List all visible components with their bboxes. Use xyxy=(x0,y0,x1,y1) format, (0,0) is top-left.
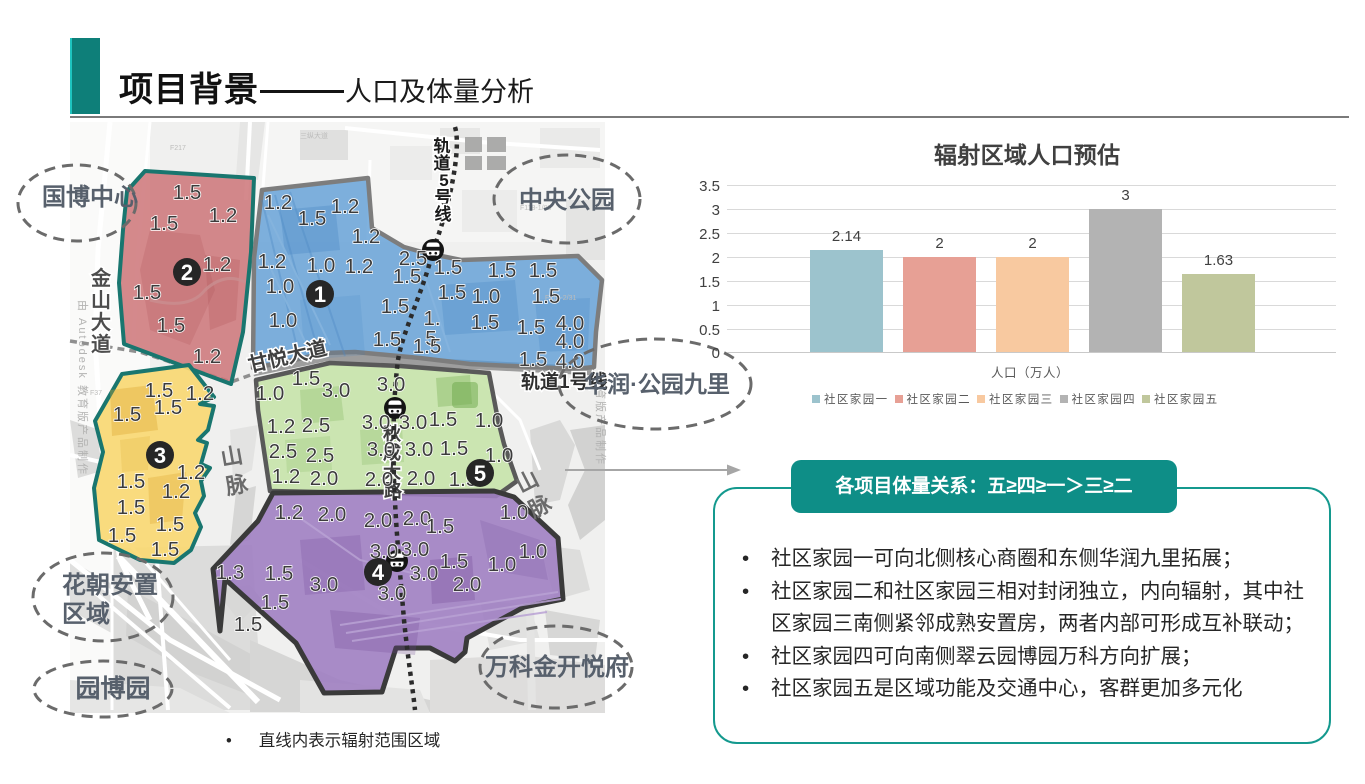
svg-text:1.2: 1.2 xyxy=(162,480,191,503)
svg-text:1: 1 xyxy=(314,282,326,307)
svg-text:国博中心: 国博中心 xyxy=(42,184,138,211)
svg-text:1.2: 1.2 xyxy=(209,204,238,227)
svg-text:5: 5 xyxy=(474,461,486,486)
svg-text:园博园: 园博园 xyxy=(75,675,150,703)
svg-text:1.5: 1.5 xyxy=(426,515,455,538)
svg-text:1.5: 1.5 xyxy=(373,328,402,351)
svg-text:1.5: 1.5 xyxy=(532,285,561,308)
svg-text:1.0: 1.0 xyxy=(307,254,336,277)
svg-text:3.0: 3.0 xyxy=(322,379,351,402)
svg-text:2.0: 2.0 xyxy=(364,509,393,532)
svg-text:中央公园: 中央公园 xyxy=(519,187,615,214)
svg-text:3.0: 3.0 xyxy=(399,411,428,434)
svg-text:3.0: 3.0 xyxy=(377,373,406,396)
svg-text:1.2: 1.2 xyxy=(345,255,374,278)
svg-text:3.0: 3.0 xyxy=(405,438,434,461)
svg-text:2.5: 2.5 xyxy=(306,444,335,467)
svg-text:1.5: 1.5 xyxy=(529,259,558,282)
svg-text:1.2: 1.2 xyxy=(267,415,296,438)
svg-text:1.2: 1.2 xyxy=(258,250,287,273)
svg-text:花朝安置: 花朝安置 xyxy=(62,571,158,599)
svg-text:3.0: 3.0 xyxy=(362,411,391,434)
svg-text:2.0: 2.0 xyxy=(407,467,436,490)
svg-text:1.5: 1.5 xyxy=(108,524,137,547)
svg-text:1.0: 1.0 xyxy=(488,553,517,576)
svg-text:1.5: 1.5 xyxy=(413,335,442,358)
svg-text:1.5: 1.5 xyxy=(154,396,183,419)
svg-text:1.0: 1.0 xyxy=(519,540,548,563)
svg-text:1.5: 1.5 xyxy=(517,316,546,339)
svg-text:1.5: 1.5 xyxy=(519,348,548,371)
svg-text:万科金开悦府: 万科金开悦府 xyxy=(485,653,629,681)
svg-text:1.5: 1.5 xyxy=(488,259,517,282)
svg-text:1.2: 1.2 xyxy=(275,501,304,524)
svg-text:1.0: 1.0 xyxy=(256,382,285,405)
svg-text:3.0: 3.0 xyxy=(367,438,396,461)
svg-text:1.5: 1.5 xyxy=(261,591,290,614)
svg-text:1.5: 1.5 xyxy=(438,281,467,304)
svg-text:三纵大道: 三纵大道 xyxy=(300,131,328,140)
svg-text:1.5: 1.5 xyxy=(429,408,458,431)
svg-text:1.5: 1.5 xyxy=(298,207,327,230)
svg-text:3.0: 3.0 xyxy=(378,582,407,605)
svg-text:1.5: 1.5 xyxy=(150,212,179,235)
svg-text:3: 3 xyxy=(154,443,166,468)
svg-text:1.5: 1.5 xyxy=(117,470,146,493)
svg-text:1.5: 1.5 xyxy=(292,367,321,390)
svg-text:1.5: 1.5 xyxy=(156,513,185,536)
svg-text:F217: F217 xyxy=(170,145,186,152)
svg-text:1.2: 1.2 xyxy=(352,225,381,248)
svg-text:1.5: 1.5 xyxy=(157,314,186,337)
svg-text:1.5: 1.5 xyxy=(133,281,162,304)
svg-text:2.5: 2.5 xyxy=(302,414,331,437)
svg-text:1.2: 1.2 xyxy=(203,253,232,276)
svg-text:1.2: 1.2 xyxy=(331,195,360,218)
svg-text:1.5: 1.5 xyxy=(434,256,463,279)
svg-text:4: 4 xyxy=(372,560,385,585)
svg-text:1.5: 1.5 xyxy=(151,538,180,561)
svg-text:1.5: 1.5 xyxy=(440,550,469,573)
svg-text:1.0: 1.0 xyxy=(500,501,529,524)
svg-text:2: 2 xyxy=(181,260,193,285)
svg-text:1.2: 1.2 xyxy=(186,382,215,405)
svg-text:1.5: 1.5 xyxy=(265,562,294,585)
svg-text:2.0: 2.0 xyxy=(365,468,394,491)
svg-text:1.0: 1.0 xyxy=(472,285,501,308)
svg-text:金山大道: 金山大道 xyxy=(90,266,112,356)
svg-text:1.5: 1.5 xyxy=(440,437,469,460)
svg-text:华润·公园九里: 华润·公园九里 xyxy=(584,371,730,397)
svg-text:2.0: 2.0 xyxy=(310,467,339,490)
svg-text:1.5: 1.5 xyxy=(234,613,263,636)
svg-text:F37: F37 xyxy=(90,390,102,397)
svg-text:1.0: 1.0 xyxy=(269,309,298,332)
svg-text:1.5: 1.5 xyxy=(381,295,410,318)
svg-text:1.0: 1.0 xyxy=(266,275,295,298)
svg-text:1.5: 1.5 xyxy=(471,311,500,334)
svg-text:区域: 区域 xyxy=(62,601,110,628)
svg-text:1.3: 1.3 xyxy=(216,561,245,584)
svg-text:1.2: 1.2 xyxy=(272,465,301,488)
svg-text:1.2: 1.2 xyxy=(193,345,222,368)
svg-text:2.0: 2.0 xyxy=(453,573,482,596)
svg-text:1.2: 1.2 xyxy=(264,191,293,214)
svg-text:1.5: 1.5 xyxy=(173,181,202,204)
svg-text:3.0: 3.0 xyxy=(401,538,430,561)
svg-text:1.5: 1.5 xyxy=(117,496,146,519)
svg-text:3.0: 3.0 xyxy=(310,573,339,596)
svg-text:1.5: 1.5 xyxy=(113,403,142,426)
svg-text:由 Autodesk 教育版产品制作: 由 Autodesk 教育版产品制作 xyxy=(76,300,90,476)
svg-text:2.5: 2.5 xyxy=(269,440,298,463)
svg-text:3.0: 3.0 xyxy=(410,562,439,585)
svg-text:2.0: 2.0 xyxy=(318,503,347,526)
svg-text:1.0: 1.0 xyxy=(475,409,504,432)
svg-text:1.5: 1.5 xyxy=(393,265,422,288)
